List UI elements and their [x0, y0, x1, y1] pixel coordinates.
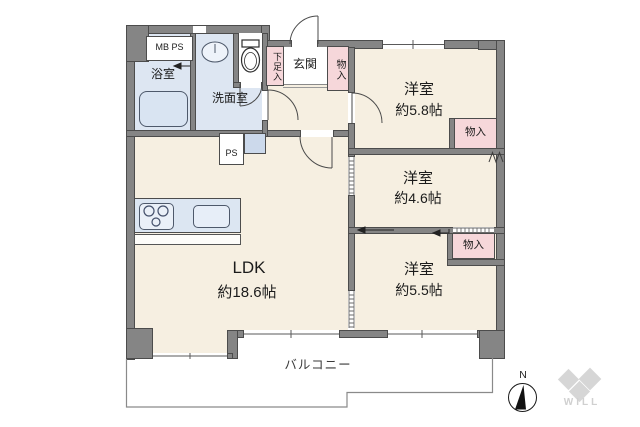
doorway-hall-ldk [301, 130, 333, 137]
wall-right [496, 40, 505, 338]
slide-door-bedroom2-gap [348, 157, 355, 195]
window-top-notch [193, 26, 206, 33]
mb-ps-label: MB PS [147, 42, 192, 52]
window-bedroom3-balcony [388, 330, 477, 338]
window-ldk-balcony [244, 330, 339, 338]
shoe-cabinet-label: 下足入 [269, 50, 282, 84]
entrance-door-arc [290, 16, 318, 44]
wall-hall-bottom-b [333, 130, 349, 137]
wall-bedroom1-2 [348, 148, 505, 155]
bedroom3-closet-label: 物入 [453, 239, 494, 251]
bedroom1-closet-label: 物入 [455, 126, 496, 138]
ps-label: PS [220, 148, 243, 158]
wall-wc-bottom-a [233, 82, 241, 88]
doorway-wc [241, 82, 261, 88]
slide-door-bedroom3-gap [348, 291, 355, 328]
wc-floor [239, 33, 262, 82]
kitchen-counter-overhang [134, 234, 241, 245]
floor-plan: MB PS 浴室 洗面室 玄関 下足入 物入 洋室 約5.8帖 物入 洋室 約4… [0, 0, 640, 427]
bedroom3-name: 洋室 [378, 261, 460, 278]
wall-bottom-right-chunk [479, 330, 505, 359]
bedroom2-size: 約4.6帖 [377, 190, 459, 206]
wall-bottom-b [339, 330, 388, 338]
wall-main-v1 [348, 47, 355, 93]
bathtub [139, 91, 188, 127]
entrance-label: 玄関 [285, 58, 325, 72]
ldk-size: 約18.6帖 [197, 284, 297, 301]
kitchen-stove [139, 203, 174, 230]
ldk-name: LDK [199, 258, 299, 278]
bath-label: 浴室 [137, 68, 189, 82]
compass-n-label: N [514, 369, 532, 381]
wall-left [126, 25, 135, 360]
compass-circle [508, 383, 537, 412]
wall-bottom-left-chunk [126, 328, 153, 359]
balcony-label: バルコニー [278, 358, 358, 372]
wall-hall-bottom-a [126, 130, 301, 137]
entrance-step-line [283, 87, 327, 88]
bedroom1-size: 約5.8帖 [378, 102, 460, 118]
will-logo-text: WILL [559, 397, 605, 409]
kitchen-sink [193, 205, 230, 228]
doorway-bedroom1 [348, 93, 355, 123]
wall-main-v3 [348, 195, 355, 291]
duct-box [244, 133, 266, 154]
window-bedroom1-top [383, 40, 444, 49]
washroom-label: 洗面室 [192, 92, 268, 106]
window-ldk-left-balcony [153, 353, 227, 359]
wall-bottom-left-seg [227, 353, 233, 359]
bedroom1-name: 洋室 [378, 81, 460, 98]
hall-closet-label: 物入 [332, 53, 345, 87]
bedroom3-size: 約5.5帖 [378, 282, 460, 298]
bedroom2-name: 洋室 [377, 170, 459, 187]
